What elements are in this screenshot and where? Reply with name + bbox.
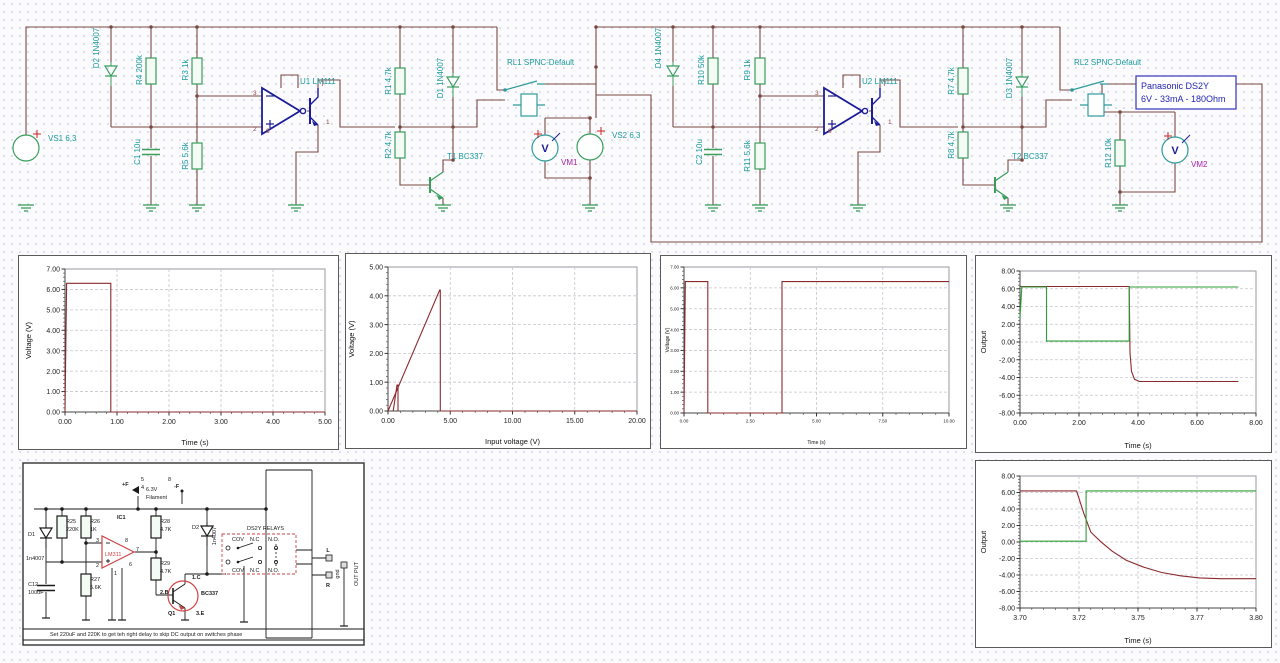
ic1-pin3: 3	[96, 538, 99, 544]
svg-text:20.00: 20.00	[628, 418, 646, 425]
svg-text:1.00: 1.00	[46, 389, 60, 396]
r25-label: R25	[66, 519, 76, 525]
ic1-label: IC1	[117, 515, 126, 521]
ic1-pin8: 8	[125, 538, 128, 544]
svg-text:5.00: 5.00	[670, 306, 679, 311]
t1-transistor[interactable]	[430, 172, 443, 200]
ic1-pin1: 1	[114, 571, 117, 577]
r12-label: R12 10k	[1104, 137, 1113, 168]
svg-text:8.00: 8.00	[1249, 420, 1263, 427]
x-axis-label: Time (s)	[1124, 441, 1152, 450]
rl2-label: RL2 SPNC-Default	[1074, 58, 1142, 67]
u1-pin7: 7	[321, 81, 325, 88]
vm2-label: VM2	[1191, 160, 1208, 169]
svg-text:2.00: 2.00	[1001, 322, 1015, 329]
svg-text:4.00: 4.00	[46, 328, 60, 335]
r2-label: R2 4,7k	[384, 130, 393, 159]
r28-label: R28	[160, 519, 170, 525]
y-axis-label: Output	[979, 330, 988, 353]
svg-text:3.77: 3.77	[1190, 615, 1204, 622]
nc-bottom: N.C	[250, 568, 260, 574]
c12-value: 100uF	[28, 590, 44, 596]
chart-canvas: 0.005.0010.0015.0020.000.001.002.003.004…	[346, 254, 650, 448]
y-axis-label: Voltage (V)	[24, 321, 33, 359]
u2-pin1: 1	[888, 119, 892, 126]
svg-text:1.00: 1.00	[670, 390, 679, 395]
filament-label: Filament	[146, 495, 168, 501]
r29-label: R29	[160, 561, 170, 567]
svg-text:0.00: 0.00	[670, 411, 679, 416]
q1-label: Q1	[168, 611, 175, 617]
r29-value: 4.7K	[160, 569, 172, 575]
svg-text:5.00: 5.00	[812, 419, 821, 424]
chart-vs1-time[interactable]: 0.001.002.003.004.005.000.001.002.003.00…	[18, 255, 339, 450]
svg-text:0.00: 0.00	[1001, 340, 1015, 347]
svg-text:0.00: 0.00	[381, 418, 395, 425]
svg-text:6.00: 6.00	[1001, 490, 1015, 497]
rl1-relay[interactable]	[503, 81, 545, 116]
svg-text:4.00: 4.00	[1001, 304, 1015, 311]
pin4-label: 4	[141, 485, 144, 491]
svg-text:-2.00: -2.00	[999, 556, 1015, 563]
x-axis-label: Input voltage (V)	[485, 437, 541, 446]
vm1-voltmeter[interactable]: V	[532, 130, 560, 161]
svg-text:6.00: 6.00	[1001, 286, 1015, 293]
r10-label: R10 50k	[697, 54, 706, 85]
rl2-relay[interactable]	[1070, 81, 1112, 116]
r4-label: R4 200k	[135, 54, 144, 85]
svg-text:5.00: 5.00	[443, 418, 457, 425]
chart-canvas: 0.002.004.006.008.00-8.00-6.00-4.00-2.00…	[976, 256, 1271, 452]
y-axis-label: Voltage (V)	[665, 327, 671, 352]
u1-pin2: 2	[253, 126, 257, 133]
pin5-label: 5	[141, 477, 144, 483]
svg-text:1.00: 1.00	[369, 380, 383, 387]
svg-text:3.80: 3.80	[1249, 615, 1263, 622]
d1-label: D1 1N4007	[436, 57, 445, 98]
y-axis-label: Voltage (V)	[347, 320, 356, 358]
svg-text:-6.00: -6.00	[999, 393, 1015, 400]
d2-value: 1n4007	[212, 527, 218, 545]
no-bottom: N.O.	[268, 568, 280, 574]
filament-voltage: 6.3V	[146, 487, 158, 493]
capacitor-symbols	[142, 150, 722, 155]
junction-dots	[109, 25, 1122, 194]
r11-label: R11 5,6k	[743, 139, 752, 171]
r5-label: R5 5,6k	[181, 141, 190, 170]
c12-label: C12	[28, 582, 38, 588]
svg-text:3.75: 3.75	[1131, 615, 1145, 622]
vm1-label: VM1	[561, 158, 578, 167]
r8-label: R8 4,7k	[947, 130, 956, 159]
u1-comparator[interactable]	[262, 88, 318, 134]
svg-text:5.00: 5.00	[46, 308, 60, 315]
vs1-source[interactable]	[13, 130, 41, 161]
chart-canvas: 0.001.002.003.004.005.000.001.002.003.00…	[19, 256, 338, 449]
out-r-label: R	[326, 583, 330, 589]
svg-text:0.00: 0.00	[58, 419, 72, 426]
t2-transistor[interactable]	[995, 172, 1008, 200]
u1-pin8: 8	[266, 128, 270, 135]
svg-text:V: V	[541, 143, 549, 155]
rl1-label: RL1 SPNC-Default	[507, 58, 575, 67]
svg-text:1.00: 1.00	[110, 419, 124, 426]
svg-text:3.00: 3.00	[369, 322, 383, 329]
module-frame	[23, 463, 364, 645]
r26-label: R26	[90, 519, 100, 525]
q1-base: 2.B	[160, 590, 169, 596]
no-top: N.O.	[268, 537, 280, 543]
nc-top: N.C	[250, 537, 260, 543]
svg-text:6.00: 6.00	[670, 286, 679, 291]
plus-f-label: +F	[122, 482, 129, 488]
workspace: V V Panasonic DS2Y 6V - 33mA - 180Ohm VS…	[0, 0, 1280, 663]
q1-collector: 1.C	[192, 575, 201, 581]
r28-value: 4.7K	[160, 527, 172, 533]
vs2-label: VS2 6,3	[612, 131, 641, 140]
svg-text:5.00: 5.00	[318, 419, 332, 426]
relays-title: DS2Y RELAYS	[247, 526, 284, 532]
vs1-label: VS1 6,3	[48, 134, 77, 143]
svg-text:3.70: 3.70	[1013, 615, 1027, 622]
module-caption: Set 220uF and 220K to get teh right dela…	[50, 632, 242, 638]
svg-text:8.00: 8.00	[1001, 474, 1015, 481]
chart-output-zoom[interactable]: 3.703.723.753.773.80-8.00-6.00-4.00-2.00…	[975, 460, 1272, 648]
u2-pin3: 3	[815, 90, 819, 97]
x-axis-label: Time (s)	[807, 440, 825, 446]
svg-text:15.00: 15.00	[566, 418, 584, 425]
svg-text:-2.00: -2.00	[999, 357, 1015, 364]
u1-pin1: 1	[326, 119, 330, 126]
note-line2: 6V - 33mA - 180Ohm	[1141, 94, 1226, 104]
svg-text:2.00: 2.00	[670, 369, 679, 374]
u2-comparator[interactable]	[824, 88, 880, 134]
gnd-label: gnd	[335, 569, 341, 578]
svg-text:3.00: 3.00	[214, 419, 228, 426]
r9-label: R9 1k	[743, 59, 752, 81]
y-axis-label: Output	[979, 530, 988, 553]
t2-label: T2 BC337	[1012, 152, 1049, 161]
svg-text:6.00: 6.00	[46, 287, 60, 294]
d3-label: D3 1N4007	[1005, 57, 1014, 98]
vs2-source[interactable]	[577, 127, 605, 160]
svg-text:10.00: 10.00	[943, 419, 955, 424]
note-line1: Panasonic DS2Y	[1141, 81, 1209, 91]
svg-text:-8.00: -8.00	[999, 411, 1015, 418]
svg-text:2.00: 2.00	[162, 419, 176, 426]
d4-label: D4 1N4007	[654, 27, 663, 68]
pin8-label: 8	[168, 477, 171, 483]
chart-canvas: 3.703.723.753.773.80-8.00-6.00-4.00-2.00…	[976, 461, 1271, 647]
r3-label: R3 1k	[181, 59, 190, 81]
svg-text:7.50: 7.50	[878, 419, 887, 424]
u2-label: U2 LM111	[862, 77, 898, 86]
q1-value: BC337	[201, 591, 218, 597]
svg-text:-4.00: -4.00	[999, 573, 1015, 580]
svg-text:8.00: 8.00	[1001, 269, 1015, 276]
chart-output-time[interactable]: 0.002.004.006.008.00-8.00-6.00-4.00-2.00…	[975, 255, 1272, 453]
svg-text:4.00: 4.00	[266, 419, 280, 426]
svg-text:3.00: 3.00	[46, 348, 60, 355]
r26-value: 1K	[90, 527, 97, 533]
cov-bottom: COV	[232, 568, 244, 574]
svg-text:2.00: 2.00	[369, 351, 383, 358]
svg-text:2.00: 2.00	[46, 369, 60, 376]
u2-pin2: 2	[815, 126, 819, 133]
svg-text:2.00: 2.00	[1072, 420, 1086, 427]
main-schematic[interactable]: V V Panasonic DS2Y 6V - 33mA - 180Ohm VS…	[0, 0, 1280, 250]
svg-text:6.00: 6.00	[1190, 420, 1204, 427]
svg-text:-8.00: -8.00	[999, 606, 1015, 613]
u2-pin7: 7	[883, 81, 887, 88]
vm2-voltmeter[interactable]: V	[1162, 132, 1190, 163]
svg-text:V: V	[1171, 145, 1179, 157]
x-axis-label: Time (s)	[1124, 636, 1152, 645]
d1-label: D1	[28, 532, 35, 538]
svg-text:0.00: 0.00	[680, 419, 689, 424]
svg-text:4.00: 4.00	[369, 293, 383, 300]
r27-label: R27	[90, 577, 100, 583]
svg-text:-6.00: -6.00	[999, 589, 1015, 596]
minus-f-label: -F	[174, 484, 180, 490]
svg-text:0.00: 0.00	[1001, 540, 1015, 547]
svg-text:-4.00: -4.00	[999, 375, 1015, 382]
svg-text:7.00: 7.00	[46, 267, 60, 274]
d2-label: D2	[192, 525, 199, 531]
svg-text:4.00: 4.00	[670, 327, 679, 332]
t1-label: T1 BC337	[447, 152, 484, 161]
r27-value: 5.6K	[90, 585, 102, 591]
ic1-pin7: 7	[136, 547, 139, 553]
svg-text:7.00: 7.00	[670, 265, 679, 270]
svg-text:3.00: 3.00	[670, 348, 679, 353]
svg-text:2.50: 2.50	[746, 419, 755, 424]
svg-text:10.00: 10.00	[504, 418, 522, 425]
r7-label: R7 4,7k	[947, 66, 956, 95]
cov-top: COV	[232, 537, 244, 543]
r1-label: R1 4,7k	[384, 66, 393, 95]
chart-transfer-curve[interactable]: 0.005.0010.0015.0020.000.001.002.003.004…	[345, 253, 651, 449]
d2-label: D2 1N4007	[92, 27, 101, 68]
svg-text:2.00: 2.00	[1001, 523, 1015, 530]
x-axis-label: Time (s)	[181, 438, 209, 447]
svg-text:4.00: 4.00	[1001, 507, 1015, 514]
chart-canvas: 0.002.505.007.5010.000.001.002.003.004.0…	[661, 256, 966, 448]
u2-pin8: 8	[828, 128, 832, 135]
ic1-pin2: 2	[96, 563, 99, 569]
svg-text:0.00: 0.00	[1013, 420, 1027, 427]
output-label: OUT PUT	[354, 561, 360, 586]
ic1-value: LM311	[105, 552, 121, 558]
c1-label: C1 10u	[133, 139, 142, 165]
relay-note-box[interactable]: Panasonic DS2Y 6V - 33mA - 180Ohm	[1136, 76, 1236, 109]
q1-emitter: 3.E	[196, 611, 205, 617]
u1-label: U1 LM111	[300, 77, 336, 86]
svg-text:3.72: 3.72	[1072, 615, 1086, 622]
reference-schematic[interactable]: +F 5 4 6.3V Filament 8 -F D1 1n4007 R25 …	[22, 462, 365, 648]
c2-label: C2 10u	[695, 139, 704, 165]
d1-value: 1n4007	[26, 556, 44, 562]
svg-text:4.00: 4.00	[1131, 420, 1145, 427]
svg-text:0.00: 0.00	[46, 410, 60, 417]
chart-relay-time[interactable]: 0.002.505.007.5010.000.001.002.003.004.0…	[660, 255, 967, 449]
svg-text:0.00: 0.00	[369, 409, 383, 416]
r25-value: 220K	[66, 527, 79, 533]
svg-text:5.00: 5.00	[369, 265, 383, 272]
ground-symbols	[18, 205, 1128, 211]
ic1-pin6: 6	[129, 562, 132, 568]
u1-pin3: 3	[253, 90, 257, 97]
